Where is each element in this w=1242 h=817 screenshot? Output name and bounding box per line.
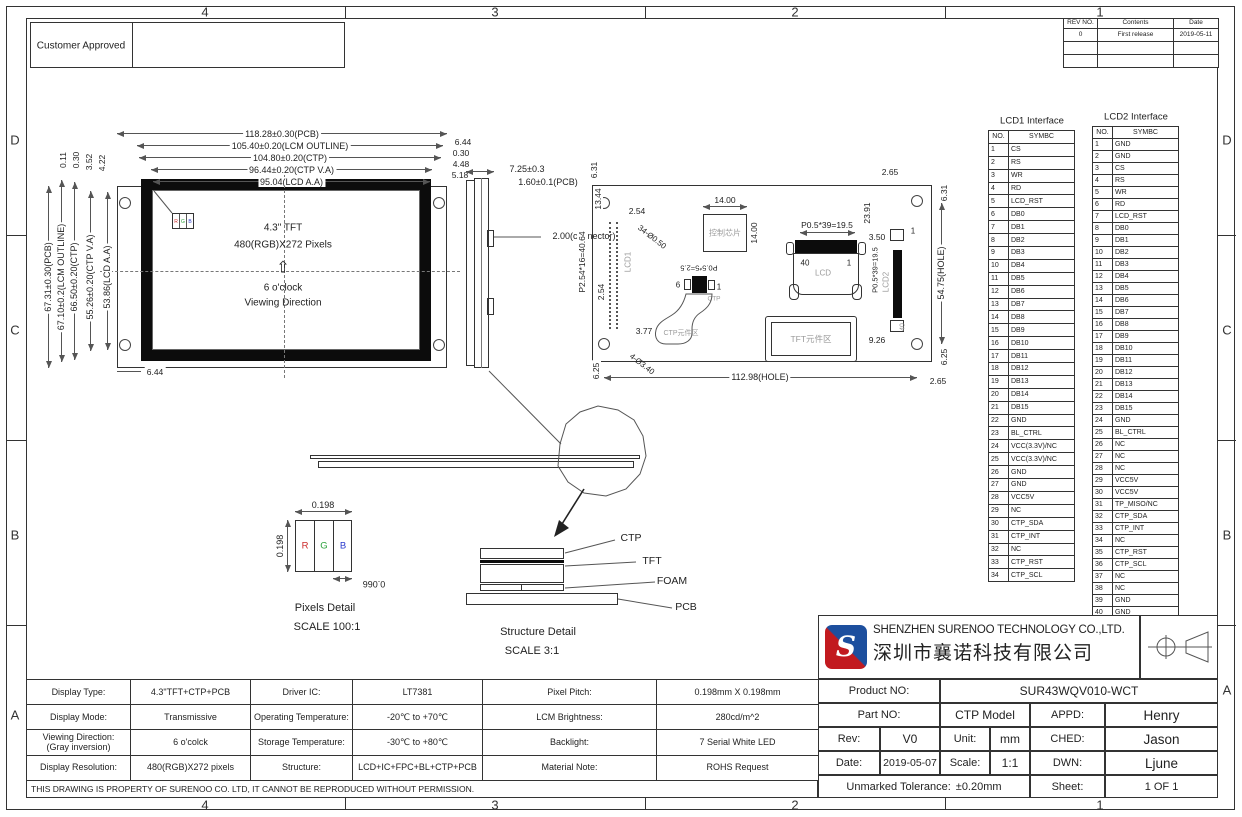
dim-label: 14.00	[712, 195, 737, 205]
pin-row: 31 TP_MISO/NC	[1093, 499, 1179, 511]
lcd1-connector-label: LCD1	[624, 252, 633, 272]
unit-value: mm	[990, 727, 1030, 751]
drawing-sheet: 4 3 2 1 4 3 2 1 D C B A D C B A Customer…	[0, 0, 1242, 817]
pin-row: 19 DB11	[1093, 355, 1179, 367]
ctp-end-pad	[684, 279, 691, 290]
pin-row: 6 RD	[1093, 199, 1179, 211]
lcd1-pin-column	[616, 222, 618, 329]
pixels-detail-title: Pixels Detail	[295, 602, 356, 614]
zone-divider	[6, 625, 26, 626]
revision-row	[1064, 42, 1219, 55]
dim-label: 3.52	[84, 152, 94, 173]
part-no-value: CTP Model	[940, 703, 1030, 727]
spec-row: Display Mode: Transmissive Operating Tem…	[27, 705, 819, 730]
disclaimer: THIS DRAWING IS PROPERTY OF SURENOO CO. …	[26, 780, 818, 798]
layer-body	[480, 564, 564, 583]
pin-row: 1 GND	[1093, 139, 1179, 151]
dim-label: 6.25	[591, 361, 601, 382]
mounting-hole	[433, 339, 445, 351]
pin-row: 28 VCC5V	[989, 491, 1075, 504]
dim-label: 4.22	[97, 153, 107, 174]
dim-label: P0.5*5=2.5	[678, 264, 719, 273]
sheet-label: Sheet:	[1030, 775, 1105, 798]
pin-row: 27 GND	[989, 479, 1075, 492]
customer-approved-label: Customer Approved	[37, 41, 125, 52]
pin-row: 30 VCC5V	[1093, 487, 1179, 499]
dim-label: 0.30	[453, 148, 470, 158]
dim-label: P2.54*16=40.64	[577, 229, 587, 294]
structure-detail-scale: SCALE 3:1	[505, 645, 559, 657]
zone-divider	[6, 235, 26, 236]
pin-number: 1	[717, 283, 721, 292]
dim-label: 6.31	[939, 183, 949, 204]
dim-label: 14.00	[749, 220, 759, 245]
dim-label: 0.066	[363, 579, 386, 589]
ctp-area-label: CTP元件区	[664, 328, 699, 338]
spec-row: Display Resolution: 480(RGB)X272 pixels …	[27, 755, 819, 780]
pin-row: 7 LCD_RST	[1093, 211, 1179, 223]
pin-number: 6	[676, 281, 680, 290]
scale-value: 1:1	[990, 751, 1030, 775]
mounting-hole	[433, 197, 445, 209]
mounting-hole	[598, 338, 610, 350]
zone-divider	[1218, 235, 1236, 236]
pin-symbol-header: SYMBC	[1113, 127, 1179, 139]
pin-row: 29 VCC5V	[1093, 475, 1179, 487]
pin-row: 8 DB0	[1093, 223, 1179, 235]
dim-label: 2.65	[880, 167, 901, 177]
date-label: Date:	[818, 751, 880, 775]
viewing-direction-arrow-icon: ⇧	[276, 258, 289, 277]
pin-row: 17 DB11	[989, 350, 1075, 363]
layer-label-pcb: PCB	[675, 601, 697, 613]
pin-row: 32 NC	[989, 543, 1075, 556]
company-names: SHENZHEN SURENOO TECHNOLOGY CO.,LTD. 深圳市…	[873, 624, 1135, 665]
zone-left-a: A	[11, 708, 20, 723]
zone-divider	[345, 6, 346, 18]
pin-row: 33 CTP_INT	[1093, 523, 1179, 535]
layer-tft	[480, 560, 564, 563]
pin-row: 2 GND	[1093, 151, 1179, 163]
pin-row: 13 DB5	[1093, 283, 1179, 295]
logo-s-glyph: S	[836, 633, 856, 661]
subpixel-g: G	[180, 214, 187, 228]
mounting-hole	[911, 338, 923, 350]
lcd-fpc-connector	[795, 240, 857, 253]
subpixel-b-label: B	[340, 541, 346, 552]
pin-row: 27 NC	[1093, 451, 1179, 463]
ctp-connector-label: CTP	[708, 296, 721, 303]
pin-row: 37 NC	[1093, 571, 1179, 583]
zone-divider	[1218, 625, 1236, 626]
tolerance-cell: Unmarked Tolerance: ±0.20mm	[818, 775, 1030, 798]
dwn-label: DWN:	[1030, 751, 1105, 775]
dim-label: 96.44±0.20(CTP V.A)	[247, 165, 336, 175]
zone-left-d: D	[10, 133, 19, 148]
dim-line	[703, 206, 747, 207]
pin-row: 34 NC	[1093, 535, 1179, 547]
pin-row: 3 CS	[1093, 163, 1179, 175]
pin-row: 22 DB14	[1093, 391, 1179, 403]
pixel-divider	[314, 520, 315, 572]
sheet-value: 1 OF 1	[1105, 775, 1218, 798]
pin-row: 23 BL_CTRL	[989, 427, 1075, 440]
rev-label: Rev:	[818, 727, 880, 751]
dim-line	[117, 371, 141, 372]
pin-row: 7 DB1	[989, 221, 1075, 234]
ctp-connector	[692, 276, 707, 293]
zone-bottom-2: 2	[791, 798, 798, 813]
control-chip-label: 控制芯片	[709, 228, 741, 239]
pin-row: 5 LCD_RST	[989, 195, 1075, 208]
ched-value: Jason	[1105, 727, 1218, 751]
layer-label-ctp: CTP	[621, 532, 642, 544]
dim-label: 67.31±0.30(PCB)	[43, 240, 53, 313]
zone-bottom-1: 1	[1096, 798, 1103, 813]
pin-row: 4 RD	[989, 182, 1075, 195]
pin-symbol-header: SYMBC	[1009, 131, 1075, 144]
dim-label: 0.30	[71, 150, 81, 171]
pixels-detail-scale: SCALE 100:1	[294, 621, 361, 633]
pin-row: 8 DB2	[989, 234, 1075, 247]
pin-row: 25 VCC(3.3V)/NC	[989, 453, 1075, 466]
lcd2-connector	[893, 250, 902, 318]
zone-divider	[6, 440, 26, 441]
revision-table: REV NO. Contents Date 0 First release 20…	[1063, 18, 1219, 68]
side-view-line	[481, 178, 482, 368]
dim-label: 66.50±0.20(CTP)	[69, 241, 79, 314]
appd-label: APPD:	[1030, 703, 1105, 727]
dim-label: 105.40±0.20(LCM OUTLINE)	[230, 141, 351, 151]
zone-bottom-3: 3	[491, 798, 498, 813]
pin-row: 16 DB10	[989, 337, 1075, 350]
contents-header: Contents	[1098, 19, 1174, 29]
subpixel-g-label: G	[320, 541, 327, 552]
dim-label: 3.77	[634, 326, 655, 336]
viewing-clock-label: 6 o'clock	[264, 283, 303, 294]
pin-row: 35 CTP_RST	[1093, 547, 1179, 559]
pin-row: 12 DB4	[1093, 271, 1179, 283]
pin-number: 40	[900, 323, 907, 331]
rev-no-header: REV NO.	[1064, 19, 1098, 29]
zone-divider	[945, 6, 946, 18]
connector-tab	[852, 284, 862, 300]
pin-row: 26 GND	[989, 466, 1075, 479]
structure-detail-title: Structure Detail	[500, 626, 576, 638]
pin-row: 11 DB5	[989, 272, 1075, 285]
zone-divider	[645, 798, 646, 810]
panel-size-label: 4.3" TFT	[264, 223, 302, 234]
mounting-hole	[119, 339, 131, 351]
dim-label: 6.44	[145, 367, 166, 377]
pin-row: 18 DB10	[1093, 343, 1179, 355]
pin-row: 34 CTP_SCL	[989, 569, 1075, 582]
pin-row: 22 GND	[989, 414, 1075, 427]
layer-foam	[480, 584, 522, 591]
dim-label: 13.44	[593, 186, 603, 211]
zone-left-b: B	[11, 528, 20, 543]
zone-right-d: D	[1222, 133, 1231, 148]
stack-bar	[310, 455, 640, 459]
spec-row: Viewing Direction: (Gray inversion) 6 o'…	[27, 730, 819, 755]
dim-label: 55.26±0.20(CTP V.A)	[85, 233, 95, 322]
pin-no-header: NO.	[989, 131, 1009, 144]
pin-row: 17 DB9	[1093, 331, 1179, 343]
dim-label: 1.60±0.1(PCB)	[518, 177, 577, 187]
pin-row: 30 CTP_SDA	[989, 517, 1075, 530]
subpixel-r-label: R	[302, 541, 309, 552]
part-no-label: Part NO:	[818, 703, 940, 727]
scale-label: Scale:	[940, 751, 990, 775]
dim-label: 4.48	[453, 159, 470, 169]
dim-label: 104.80±0.20(CTP)	[251, 153, 329, 163]
appd-value: Henry	[1105, 703, 1218, 727]
pin-row: 12 DB6	[989, 285, 1075, 298]
layer-label-tft: TFT	[642, 555, 661, 567]
layer-ctp	[480, 548, 564, 559]
stack-bar	[318, 461, 634, 468]
pin-row: 33 CTP_RST	[989, 556, 1075, 569]
zone-bottom-4: 4	[201, 798, 208, 813]
date-value: 2019-05-07	[880, 751, 940, 775]
stamp-divider	[132, 22, 133, 68]
surenoo-logo: S	[825, 625, 867, 669]
pin-row: 26 NC	[1093, 439, 1179, 451]
pin-row: 9 DB3	[989, 247, 1075, 260]
dim-line: 118.28±0.30(PCB)	[117, 133, 447, 134]
date-header: Date	[1174, 19, 1219, 29]
company-name-cn: 深圳市襄诺科技有限公司	[873, 638, 1135, 665]
tolerance-label: Unmarked Tolerance:	[846, 781, 950, 793]
dim-line: 105.40±0.20(LCM OUTLINE)	[137, 145, 443, 146]
tolerance-value: ±0.20mm	[956, 781, 1002, 793]
layer-label-foam: FOAM	[657, 575, 687, 587]
dim-label: 53.86(LCD A.A)	[102, 243, 112, 310]
pin-row: 38 NC	[1093, 583, 1179, 595]
subpixel-b: B	[187, 214, 193, 228]
dim-label: 95.04(LCD A.A)	[258, 177, 325, 187]
dim-label: 6.25	[939, 347, 949, 368]
pin-row: 9 DB1	[1093, 235, 1179, 247]
tft-area-label: TFT元件区	[790, 333, 831, 345]
dim-label: 2.54	[596, 282, 606, 303]
lcd2-connector-label: LCD2	[882, 272, 891, 292]
dim-label: 9.26	[867, 335, 888, 345]
dim-label: 0.198	[310, 500, 337, 510]
pixel-divider	[333, 520, 334, 572]
pin-row: 28 NC	[1093, 463, 1179, 475]
pin-row: 13 DB7	[989, 298, 1075, 311]
lcd1-pin-column	[609, 222, 611, 329]
zone-divider	[945, 798, 946, 810]
pin-number: 1	[911, 227, 915, 236]
pin-row: 15 DB7	[1093, 307, 1179, 319]
lcd2-interface-title: LCD2 Interface	[1104, 112, 1168, 123]
pin-row: 24 GND	[1093, 415, 1179, 427]
dim-line	[466, 171, 494, 172]
pin-row: 10 DB2	[1093, 247, 1179, 259]
ched-label: CHED:	[1030, 727, 1105, 751]
connector-tab	[858, 242, 866, 255]
zone-right-a: A	[1223, 683, 1232, 698]
company-name-en: SHENZHEN SURENOO TECHNOLOGY CO.,LTD.	[873, 624, 1135, 636]
pin-number: 1	[847, 259, 851, 268]
zone-right-c: C	[1222, 323, 1231, 338]
zone-divider	[1218, 440, 1236, 441]
dim-line	[800, 232, 855, 233]
dim-label: 112.98(HOLE)	[729, 372, 790, 382]
pin-row: 36 CTP_SCL	[1093, 559, 1179, 571]
pin-row: 24 VCC(3.3V)/NC	[989, 440, 1075, 453]
dim-line	[333, 578, 352, 579]
pin-row: 11 DB3	[1093, 259, 1179, 271]
dwn-value: Ljune	[1105, 751, 1218, 775]
pin-row: 3 WR	[989, 169, 1075, 182]
dim-label: 6.31	[589, 160, 599, 181]
subpixel-r: R	[173, 214, 180, 228]
lcd-connector-label: LCD	[815, 269, 831, 278]
pin-row: 18 DB12	[989, 363, 1075, 376]
product-no-value: SUR43WQV010-WCT	[940, 679, 1218, 703]
dim-label: 23.91	[862, 200, 872, 225]
pin-row: 21 DB13	[1093, 379, 1179, 391]
lcd1-interface-title: LCD1 Interface	[1000, 116, 1064, 127]
mounting-hole	[911, 195, 923, 207]
ctp-end-pad	[708, 280, 715, 290]
dim-line: 95.04(LCD A.A)	[153, 181, 430, 182]
pin-row: 6 DB0	[989, 208, 1075, 221]
pin-row: 23 DB15	[1093, 403, 1179, 415]
dim-line	[295, 511, 352, 512]
dim-line	[287, 520, 288, 572]
pin-row: 21 DB15	[989, 401, 1075, 414]
pin-row: 15 DB9	[989, 324, 1075, 337]
dim-label: 6.44	[455, 137, 472, 147]
side-view-connector	[487, 230, 494, 247]
subpixel-mini-box: R G B	[172, 213, 194, 229]
product-no-label: Product NO:	[818, 679, 940, 703]
panel-resolution-label: 480(RGB)X272 Pixels	[234, 240, 332, 251]
pin-row: 1 CS	[989, 143, 1075, 156]
pin-no-header: NO.	[1093, 127, 1113, 139]
company-block: S SHENZHEN SURENOO TECHNOLOGY CO.,LTD. 深…	[818, 615, 1140, 679]
zone-top-3: 3	[491, 5, 498, 20]
pin-row: 25 BL_CTRL	[1093, 427, 1179, 439]
dim-label: P0.5*39=19.5	[799, 220, 855, 230]
pin-row: 32 CTP_SDA	[1093, 511, 1179, 523]
dim-label: 2.65	[928, 376, 949, 386]
zone-top-4: 4	[201, 5, 208, 20]
pin-row: 19 DB13	[989, 375, 1075, 388]
zone-left-c: C	[10, 323, 19, 338]
lcd2-end-pad	[890, 229, 904, 241]
layer-pcb	[466, 593, 618, 605]
pin-row: 4 RS	[1093, 175, 1179, 187]
pin-row: 20 DB12	[1093, 367, 1179, 379]
pin-number: 40	[801, 259, 810, 268]
dim-label: P0.5*39=19.5	[871, 245, 880, 295]
pin-row: 10 DB4	[989, 259, 1075, 272]
pin-row: 31 CTP_INT	[989, 530, 1075, 543]
pin-row: 14 DB6	[1093, 295, 1179, 307]
dim-line: 96.44±0.20(CTP V.A)	[151, 169, 432, 170]
pin-row: 5 WR	[1093, 187, 1179, 199]
zone-divider	[645, 6, 646, 18]
spec-table: Display Type: 4.3"TFT+CTP+PCB Driver IC:…	[26, 679, 819, 781]
lcd2-interface-table: NO. SYMBC 1 GND 2 GND 3 CS 4 RS 5 WR 6 R…	[1092, 126, 1179, 619]
pin-row: 39 GND	[1093, 595, 1179, 607]
dim-label: 2.54	[627, 206, 648, 216]
pin-row: 2 RS	[989, 156, 1075, 169]
spec-row: Display Type: 4.3"TFT+CTP+PCB Driver IC:…	[27, 680, 819, 705]
unit-label: Unit:	[940, 727, 990, 751]
dim-label: 67.10±0.2(LCM OUTLINE)	[56, 222, 66, 332]
dim-label: 0.198	[275, 533, 285, 560]
mounting-hole	[119, 197, 131, 209]
rev-value: V0	[880, 727, 940, 751]
pin-row: 14 DB8	[989, 311, 1075, 324]
dim-label: 0.11	[58, 150, 68, 170]
connector-tab	[789, 284, 799, 300]
pin-row: 20 DB14	[989, 388, 1075, 401]
dim-label: 3.50	[867, 232, 888, 242]
zone-divider	[345, 798, 346, 810]
dim-label: 118.28±0.30(PCB)	[243, 129, 321, 139]
projection-symbol-cell	[1140, 615, 1218, 679]
zone-top-2: 2	[791, 5, 798, 20]
layer-foam	[521, 584, 564, 591]
pin-row: 16 DB8	[1093, 319, 1179, 331]
revision-row: 0 First release 2019-05-11	[1064, 29, 1219, 42]
pin-row: 29 NC	[989, 504, 1075, 517]
side-view-connector	[487, 298, 494, 315]
revision-row	[1064, 55, 1219, 68]
zone-right-b: B	[1223, 528, 1232, 543]
dim-line: 104.80±0.20(CTP)	[139, 157, 441, 158]
lcd1-interface-table: NO. SYMBC 1 CS 2 RS 3 WR 4 RD 5 LCD_RST …	[988, 130, 1075, 582]
viewing-direction-label: Viewing Direction	[244, 298, 321, 309]
dim-label: 54.75(HOLE)	[936, 244, 946, 301]
dim-label: 7.25±0.3	[510, 164, 545, 174]
